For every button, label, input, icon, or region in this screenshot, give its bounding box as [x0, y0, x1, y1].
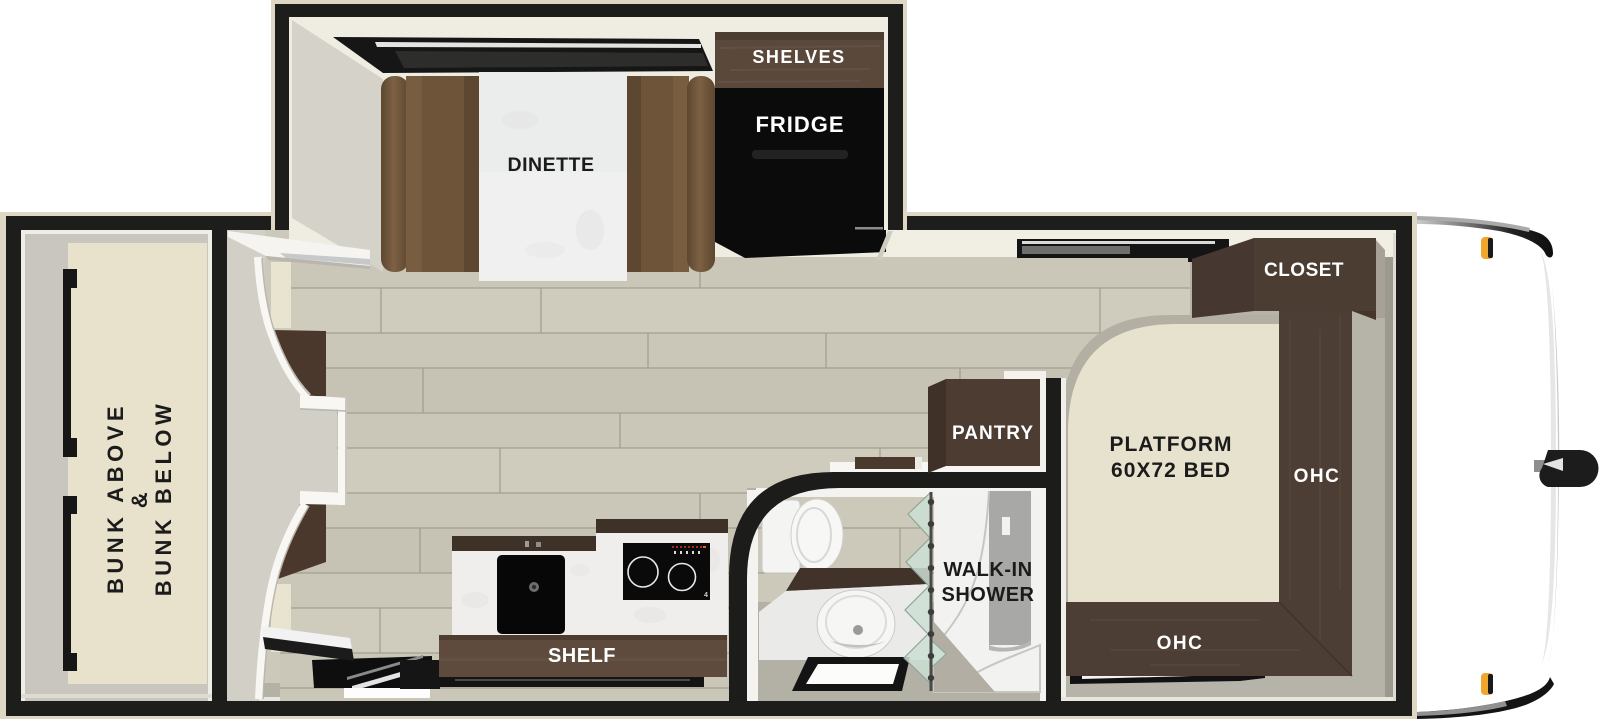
svg-text:PANTRY: PANTRY — [952, 423, 1034, 444]
svg-text:BUNK BELOW: BUNK BELOW — [151, 400, 176, 597]
svg-text:OHC: OHC — [1294, 466, 1341, 487]
svg-text:60X72 BED: 60X72 BED — [1111, 459, 1231, 482]
svg-text:PLATFORM: PLATFORM — [1109, 433, 1232, 456]
svg-text:FRIDGE: FRIDGE — [755, 112, 844, 137]
svg-text:OHC: OHC — [1157, 633, 1204, 654]
svg-text:CLOSET: CLOSET — [1264, 260, 1344, 281]
svg-text:DINETTE: DINETTE — [508, 154, 595, 176]
svg-text:&: & — [127, 488, 152, 508]
svg-text:4: 4 — [704, 592, 708, 599]
svg-text:BUNK ABOVE: BUNK ABOVE — [103, 402, 128, 594]
svg-text:WALK-IN: WALK-IN — [943, 559, 1032, 581]
svg-text:SHELVES: SHELVES — [752, 47, 845, 67]
svg-text:SHELF: SHELF — [548, 645, 616, 667]
svg-text:SHOWER: SHOWER — [942, 584, 1035, 606]
